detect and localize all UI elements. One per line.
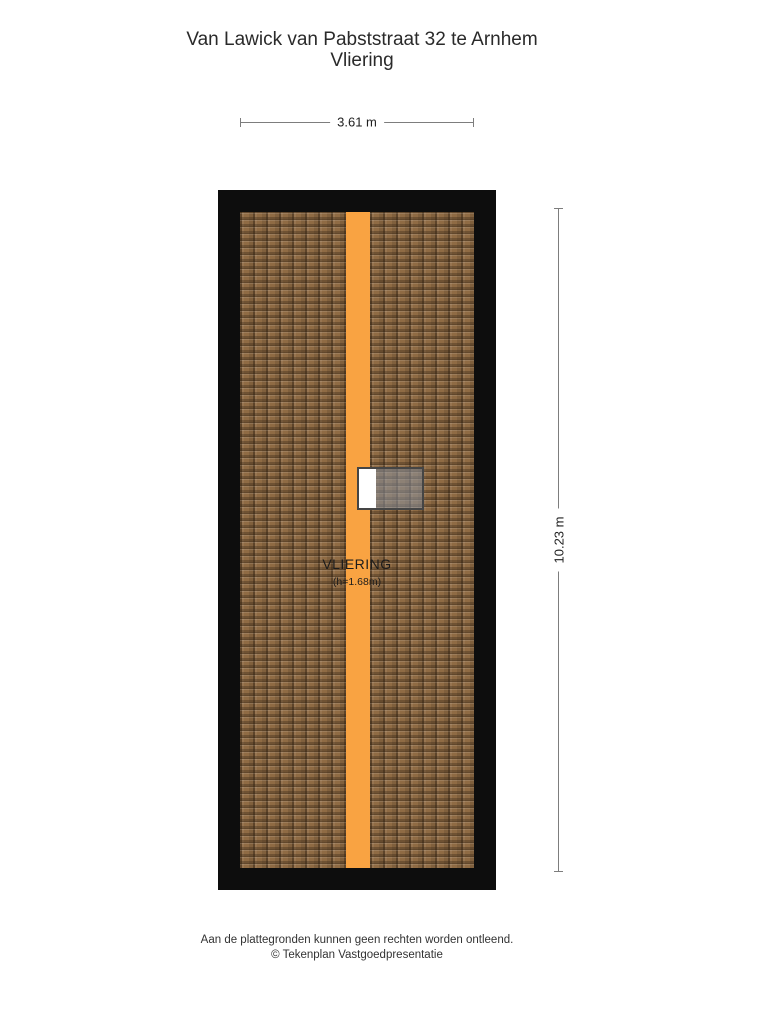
ridge-beam (346, 212, 370, 868)
footer-line2: © Tekenplan Vastgoedpresentatie (0, 948, 714, 963)
dimension-height-tick-top (554, 208, 563, 209)
skylight-frame (359, 469, 376, 508)
page-title: Van Lawick van Pabststraat 32 te Arnhem … (0, 29, 724, 71)
room-label: VLIERING (h=1.68m) (240, 556, 474, 588)
footer-disclaimer: Aan de plattegronden kunnen geen rechten… (0, 933, 714, 963)
title-address: Van Lawick van Pabststraat 32 te Arnhem (0, 29, 724, 50)
dimension-height: 10.23 m (550, 208, 567, 872)
room-name: VLIERING (240, 556, 474, 572)
dimension-width-label: 3.61 m (330, 115, 384, 130)
dimension-width-tick-left (240, 118, 241, 127)
roof-surface: VLIERING (h=1.68m) (240, 212, 474, 868)
skylight-glass (376, 469, 422, 508)
dimension-height-label: 10.23 m (551, 509, 566, 572)
dimension-width-tick-right (473, 118, 474, 127)
floorplan: VLIERING (h=1.68m) (218, 190, 496, 890)
dimension-height-tick-bottom (554, 871, 563, 872)
dimension-width: 3.61 m (240, 114, 474, 131)
title-floor-name: Vliering (0, 50, 724, 71)
footer-line1: Aan de plattegronden kunnen geen rechten… (0, 933, 714, 948)
skylight-window (357, 467, 424, 510)
room-height-note: (h=1.68m) (240, 576, 474, 588)
